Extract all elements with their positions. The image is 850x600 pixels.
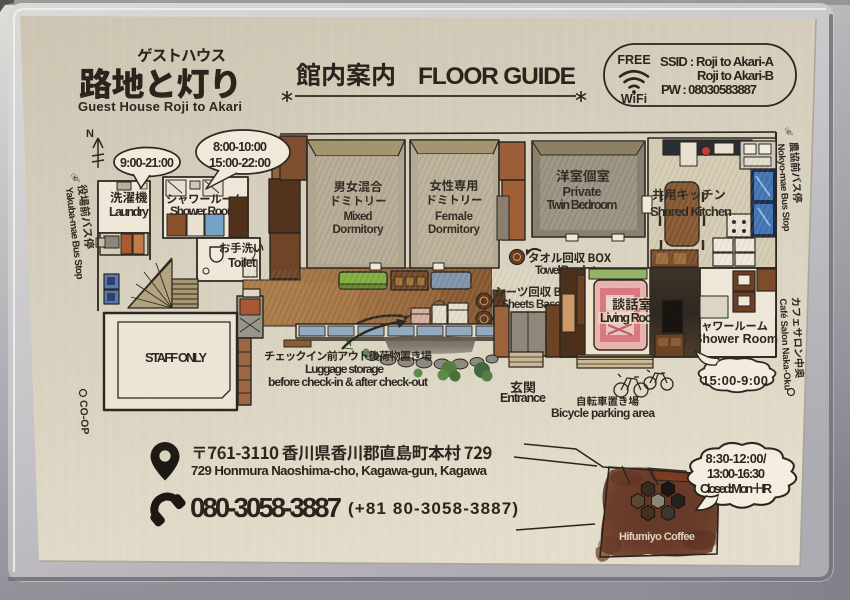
svg-text:13:00-16:30: 13:00-16:30 [707,466,765,481]
svg-text:Closed:Mon＋IR: Closed:Mon＋IR [700,481,772,496]
svg-text:080-3058-3887: 080-3058-3887 [190,492,342,523]
svg-text:8:30-12:00/: 8:30-12:00/ [706,451,767,466]
svg-text:WiFi: WiFi [621,92,647,106]
svg-text:CO-OP: CO-OP [77,400,91,435]
svg-text:N: N [86,128,94,140]
svg-text:Guest House Roji to Akari: Guest House Roji to Akari [78,99,242,114]
svg-text:FREE: FREE [617,53,650,67]
svg-text:FLOOR GUIDE: FLOOR GUIDE [418,63,576,90]
svg-text:SSID : Roji to Akari-A: SSID : Roji to Akari-A [660,54,775,69]
svg-text:Roji to Akari-B: Roji to Akari-B [697,68,774,83]
svg-text:729 Honmura Naoshima-cho, Kaga: 729 Honmura Naoshima-cho, Kagawa-gun, Ka… [191,463,488,478]
svg-text:(+81 80-3058-3887): (+81 80-3058-3887) [348,499,518,518]
svg-text:Hifumiyo Coffee: Hifumiyo Coffee [619,531,695,543]
svg-text:PW : 08030583887: PW : 08030583887 [661,82,757,97]
